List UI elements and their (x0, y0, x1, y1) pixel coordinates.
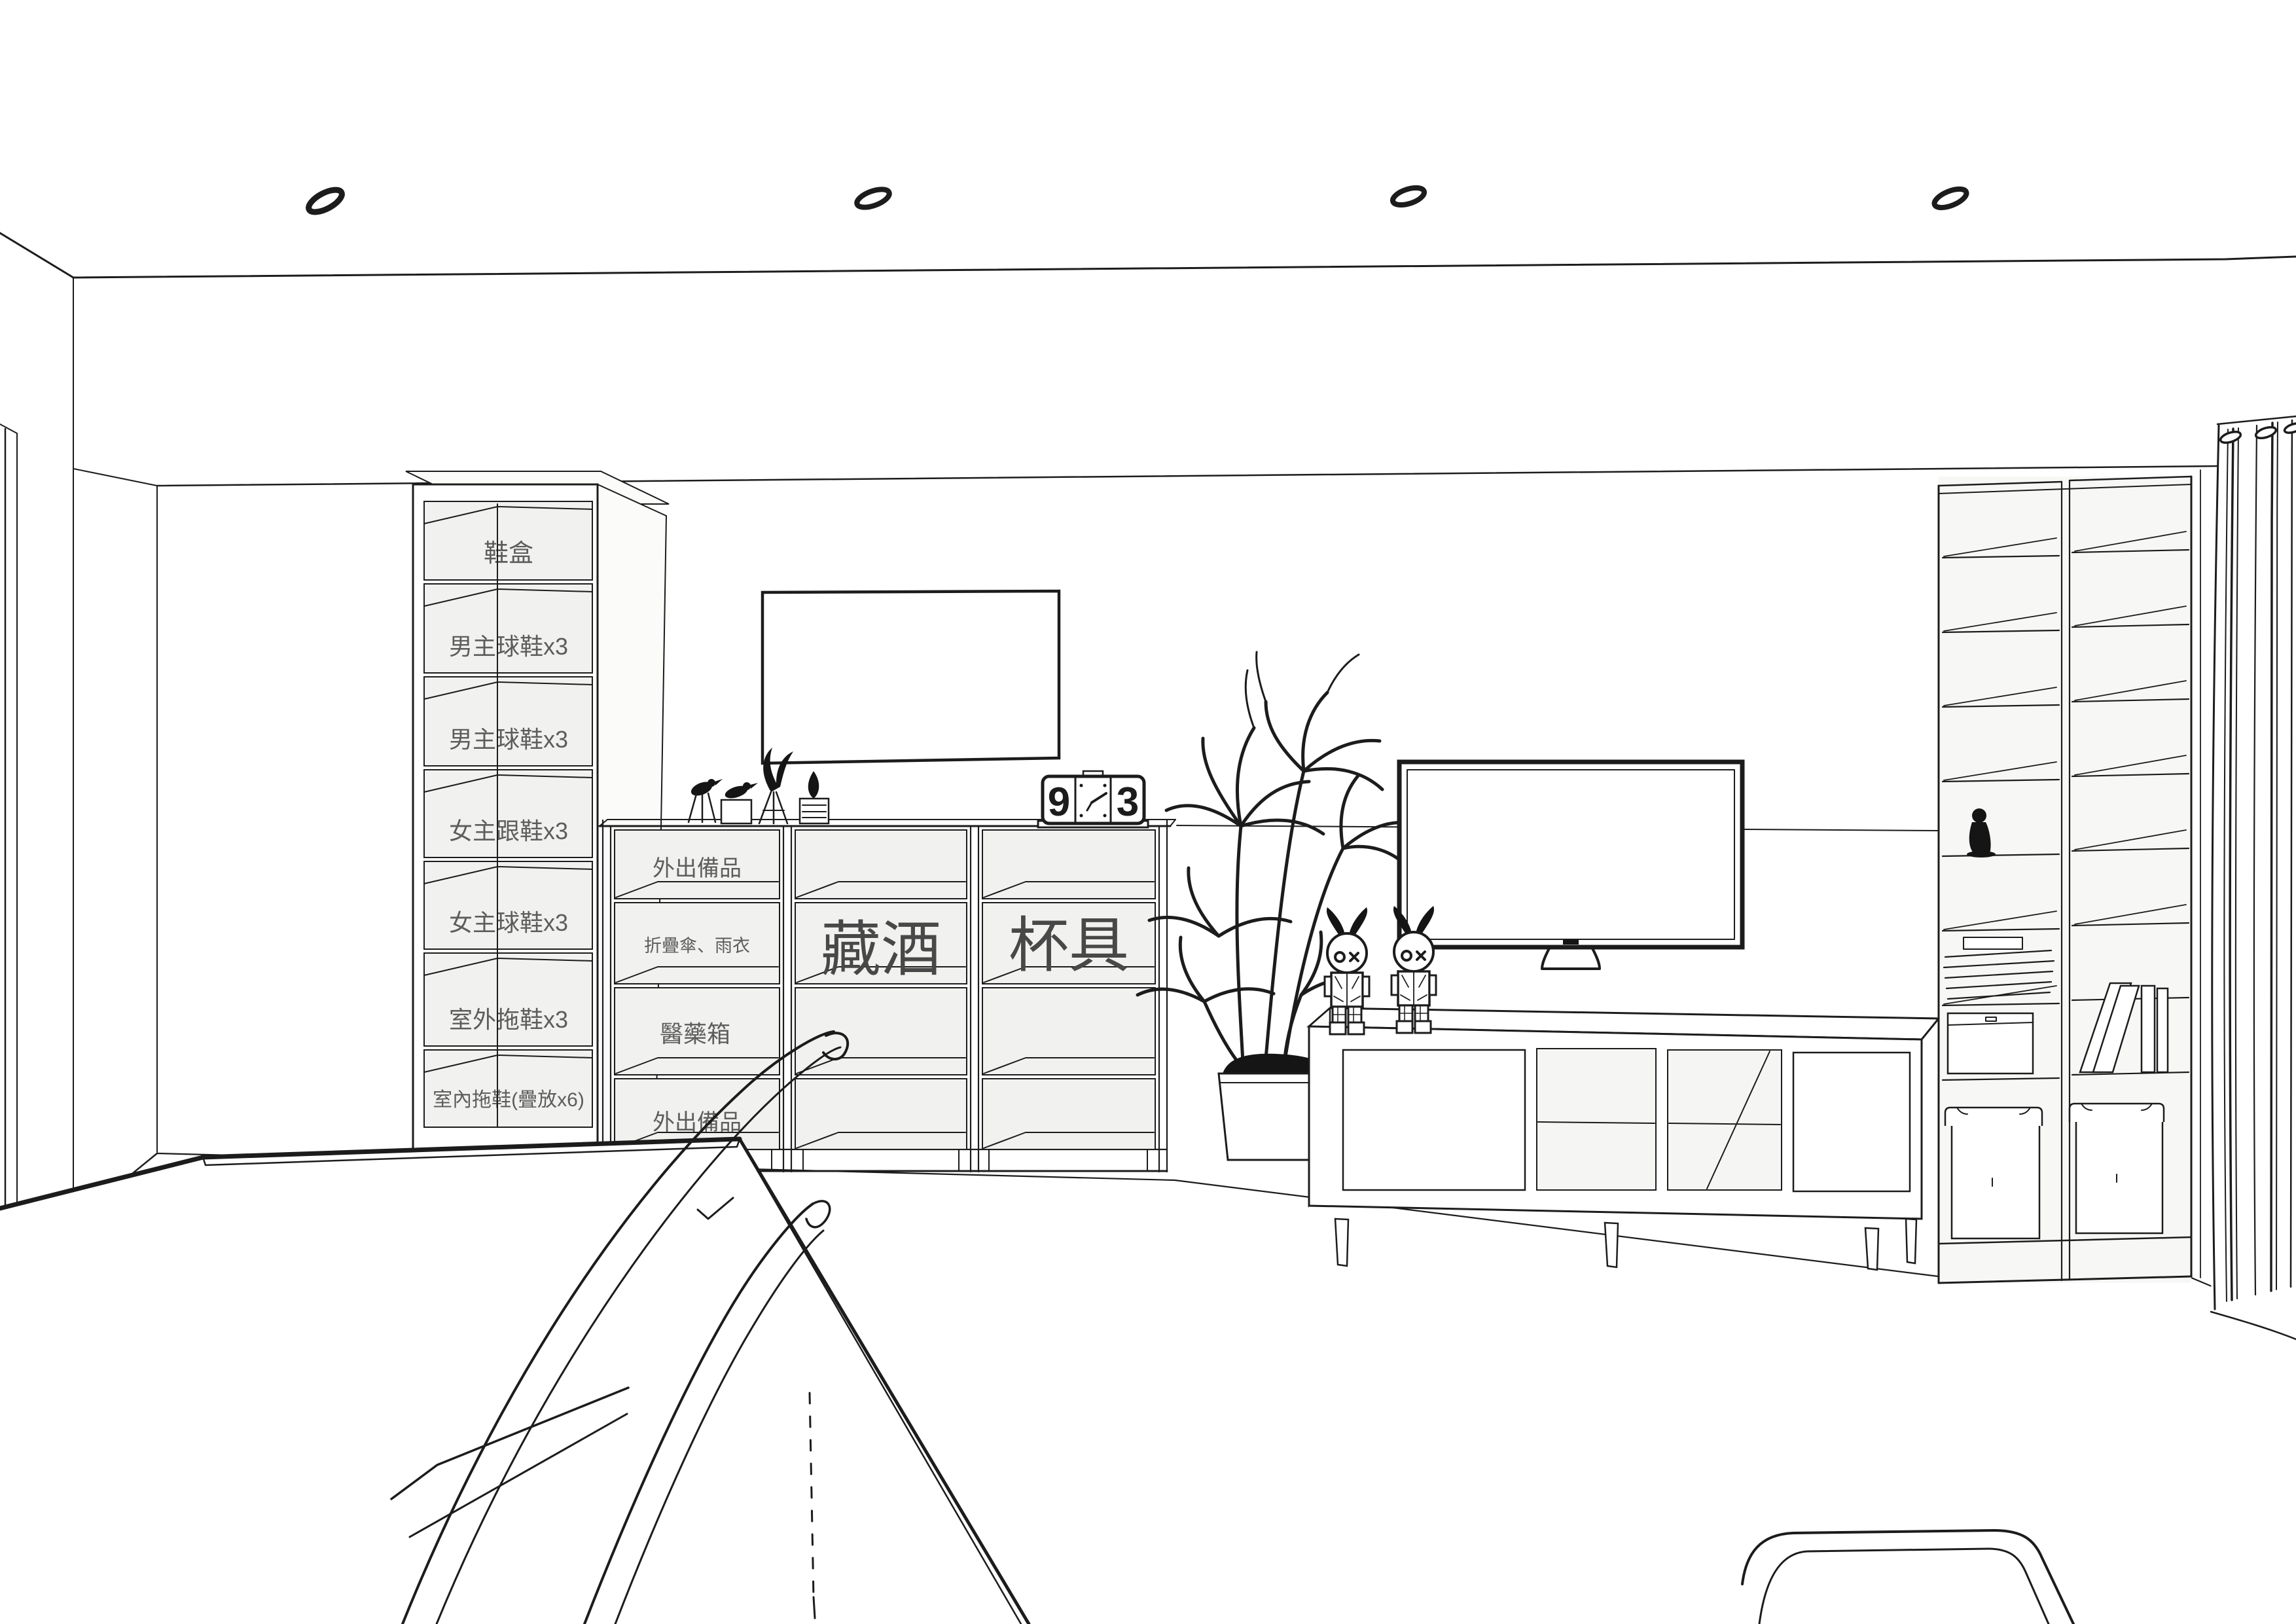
sideboard-label: 外出備品 (653, 856, 742, 881)
sideboard-label: 外出備品 (653, 1110, 742, 1135)
shoe-row-label: 女主球鞋x3 (449, 909, 568, 936)
tv-screen (1399, 762, 1742, 947)
flip-clock: 9 3 (1038, 771, 1148, 827)
sideboard-label: 醫藥箱 (660, 1020, 730, 1047)
wall-tv (1399, 762, 1742, 969)
rendering-stage: 鞋盒 男主球鞋x3 男主球鞋x3 女主跟鞋x3 女主球鞋x3 室外拖鞋x3 (0, 0, 2296, 1624)
tv-stand-door-left (1343, 1050, 1525, 1190)
sideboard-unit-3: 杯具 (982, 830, 1155, 1149)
shoe-row-label: 室內拖鞋(疊放x6) (433, 1089, 584, 1111)
blank-picture-frame (762, 591, 1059, 763)
storage-box-with-lid (1945, 1108, 2042, 1238)
shoe-row-label: 室外拖鞋x3 (449, 1006, 568, 1033)
shoe-shelf-row: 鞋盒 (424, 501, 592, 580)
shoe-row-label: 女主跟鞋x3 (449, 818, 568, 844)
tv-stand-door-right (1793, 1053, 1910, 1191)
clock-hour-digit: 9 (1048, 780, 1070, 825)
shoe-row-label: 鞋盒 (484, 540, 533, 568)
clock-minute-digit: 3 (1117, 780, 1139, 825)
sideboard: 外出備品 折疊傘、雨衣 醫藥箱 外出備品 藏酒 杯具 (600, 820, 1175, 1172)
shoe-shelf-row: 室內拖鞋(疊放x6) (424, 1050, 592, 1127)
tv-brand-mark (1563, 940, 1579, 945)
sideboard-label: 折疊傘、雨衣 (644, 936, 750, 956)
curtain (2211, 416, 2296, 1343)
tv-stand-open-shelf (1537, 1049, 1656, 1190)
sideboard-unit-2: 藏酒 (795, 830, 967, 1149)
wine-storage-label: 藏酒 (821, 916, 941, 983)
right-bookshelf (1939, 477, 2191, 1283)
tv-stand-open-shelf-2 (1668, 1050, 1782, 1190)
sideboard-unit-1: 外出備品 折疊傘、雨衣 醫藥箱 外出備品 (615, 830, 780, 1149)
shoe-row-7 (424, 1050, 592, 1127)
shoe-row-label: 男主球鞋x3 (449, 633, 568, 660)
shoe-shelf-row: 女主球鞋x3 (424, 861, 592, 949)
shoe-row-label: 男主球鞋x3 (449, 726, 568, 753)
shoe-shelf-row: 男主球鞋x3 (424, 584, 592, 673)
room-rendering: 鞋盒 男主球鞋x3 男主球鞋x3 女主跟鞋x3 女主球鞋x3 室外拖鞋x3 (0, 0, 2296, 1624)
flat-box (1948, 1013, 2033, 1074)
shoe-shelf-row: 室外拖鞋x3 (424, 953, 592, 1046)
shoe-shelf-row: 女主跟鞋x3 (424, 770, 592, 857)
shoe-shelf-row: 男主球鞋x3 (424, 677, 592, 766)
cupware-label: 杯具 (1009, 912, 1129, 979)
storage-box-with-lid (2070, 1104, 2164, 1233)
